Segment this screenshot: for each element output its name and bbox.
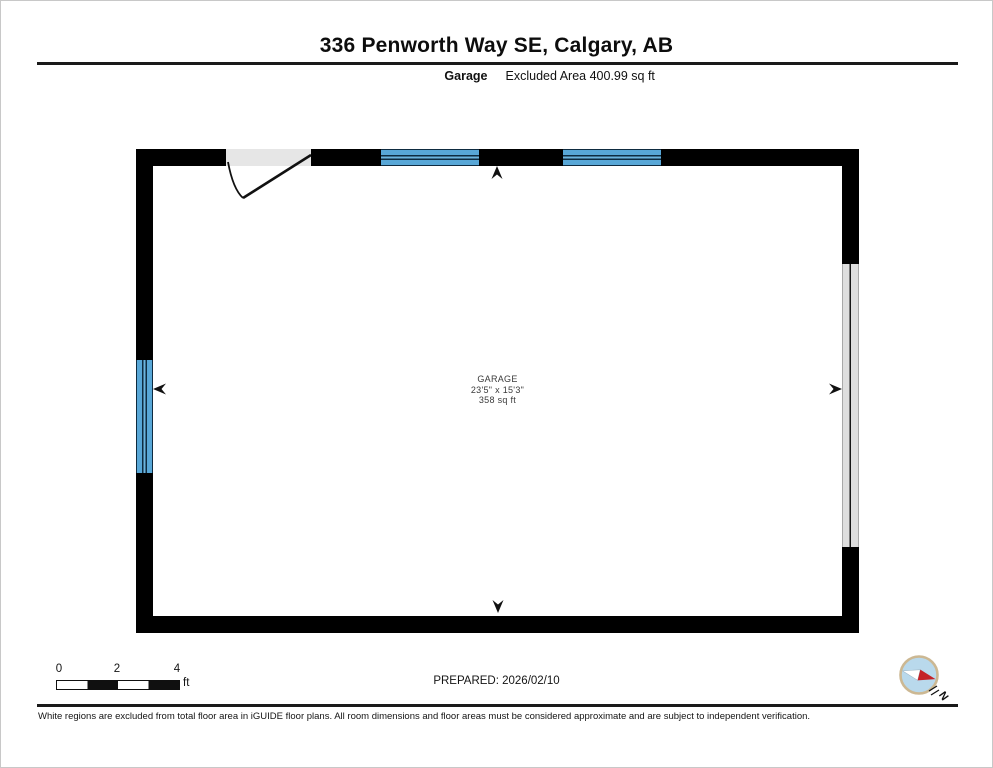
camera-arrow-up-icon xyxy=(492,166,503,179)
footer-divider xyxy=(37,704,958,707)
scale-tick-2: 2 xyxy=(110,663,124,675)
door-swing-arc xyxy=(228,162,243,198)
header-divider xyxy=(37,62,958,65)
prepared-date: PREPARED: 2026/02/10 xyxy=(1,675,992,687)
compass-icon: N xyxy=(892,649,962,707)
room-area: 358 sq ft xyxy=(136,395,859,406)
room-name: GARAGE xyxy=(136,374,859,385)
floorplan-page: 336 Penworth Way SE, Calgary, AB Garage … xyxy=(0,0,993,768)
scale-tick-4: 4 xyxy=(170,663,184,675)
excluded-area-label: Excluded Area 400.99 sq ft xyxy=(496,69,993,83)
page-title: 336 Penworth Way SE, Calgary, AB xyxy=(1,34,992,58)
floorplan-drawing: GARAGE 23'5" x 15'3" 358 sq ft xyxy=(136,149,859,633)
scale-tick-0: 0 xyxy=(52,663,66,675)
compass: N xyxy=(892,649,962,707)
door-leaf-line xyxy=(243,155,311,198)
room-dimensions: 23'5" x 15'3" xyxy=(136,385,859,396)
disclaimer-text: White regions are excluded from total fl… xyxy=(38,711,958,722)
floor-label: Garage xyxy=(1,69,496,83)
camera-arrow-down-icon xyxy=(493,600,504,613)
room-label: GARAGE 23'5" x 15'3" 358 sq ft xyxy=(136,374,859,406)
north-label: N xyxy=(936,690,950,703)
subtitle: Garage Excluded Area 400.99 sq ft xyxy=(1,69,992,83)
